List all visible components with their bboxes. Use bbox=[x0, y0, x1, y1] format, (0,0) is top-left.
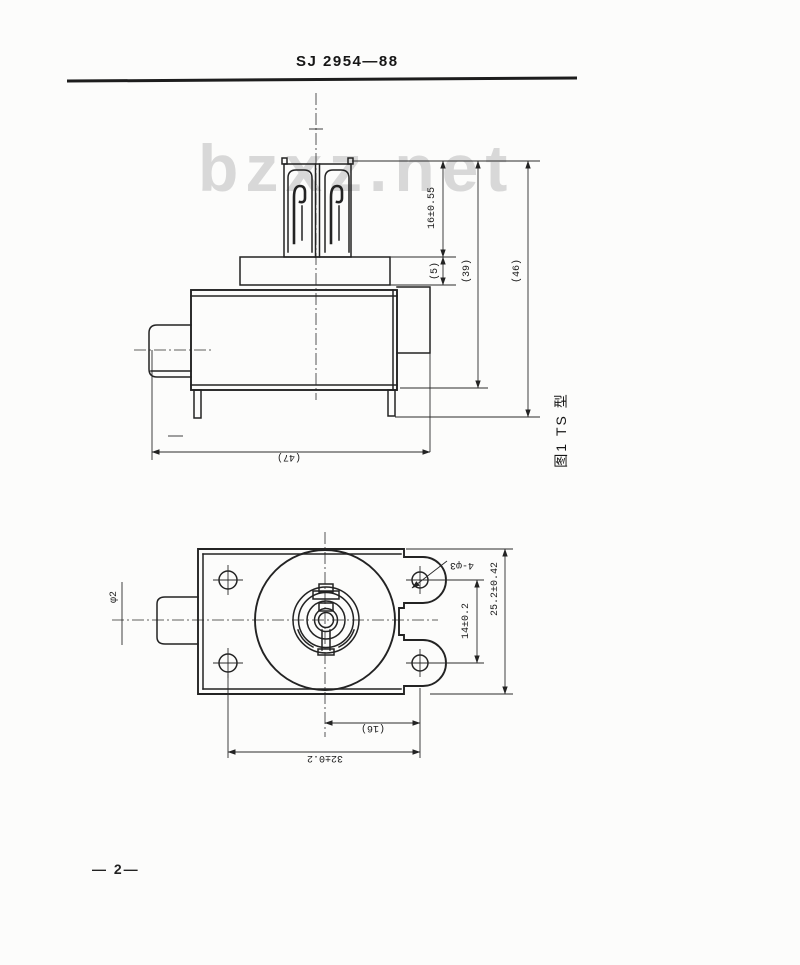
left-boss bbox=[149, 325, 191, 377]
dim-flange-thickness: (5) bbox=[429, 262, 441, 280]
mounting-holes bbox=[213, 565, 434, 678]
figure1-side-view: 16±0.55 (5) (39) (46) (47) 图1 TS 型 bbox=[134, 93, 569, 468]
figure1-caption: 图1 TS 型 bbox=[553, 392, 569, 467]
mounting-leg-left bbox=[194, 390, 201, 418]
dim-lug-hole-spacing: 14±0.2 bbox=[461, 603, 472, 639]
right-step-block bbox=[397, 287, 430, 353]
page-number: — 2— bbox=[92, 861, 140, 877]
dim-hole-spacing: 32±0.2 bbox=[307, 752, 343, 763]
upper-flange bbox=[240, 257, 390, 285]
dim-height-46: (46) bbox=[511, 259, 523, 283]
figure2-top-view: φ2 4-φ3 14±0.2 25.2±0.42 (16) 32±0.2 bbox=[109, 532, 513, 763]
terminal-contact-left bbox=[288, 170, 312, 252]
dim-overall-length: (47) bbox=[277, 451, 301, 463]
scanned-standard-page: SJ 2954—88 bzxz.net bbox=[0, 0, 800, 965]
mounting-plate bbox=[198, 549, 446, 694]
mounting-leg-right bbox=[388, 390, 395, 416]
dim-center-to-hole: (16) bbox=[361, 722, 385, 734]
technical-drawings: 16±0.55 (5) (39) (46) (47) 图1 TS 型 bbox=[0, 0, 800, 965]
dim-plate-width: 25.2±0.42 bbox=[490, 562, 501, 616]
dim-mounting-holes: 4-φ3 bbox=[450, 559, 474, 570]
dim-terminal-height: 16±0.55 bbox=[427, 187, 438, 229]
terminal-contact-right bbox=[325, 170, 349, 252]
dim-shaft-dia: φ2 bbox=[109, 591, 120, 603]
center-hub bbox=[293, 584, 359, 655]
terminal-block bbox=[282, 158, 353, 257]
motor-body bbox=[191, 287, 430, 390]
output-shaft bbox=[157, 597, 198, 644]
dim-height-39: (39) bbox=[461, 259, 473, 283]
